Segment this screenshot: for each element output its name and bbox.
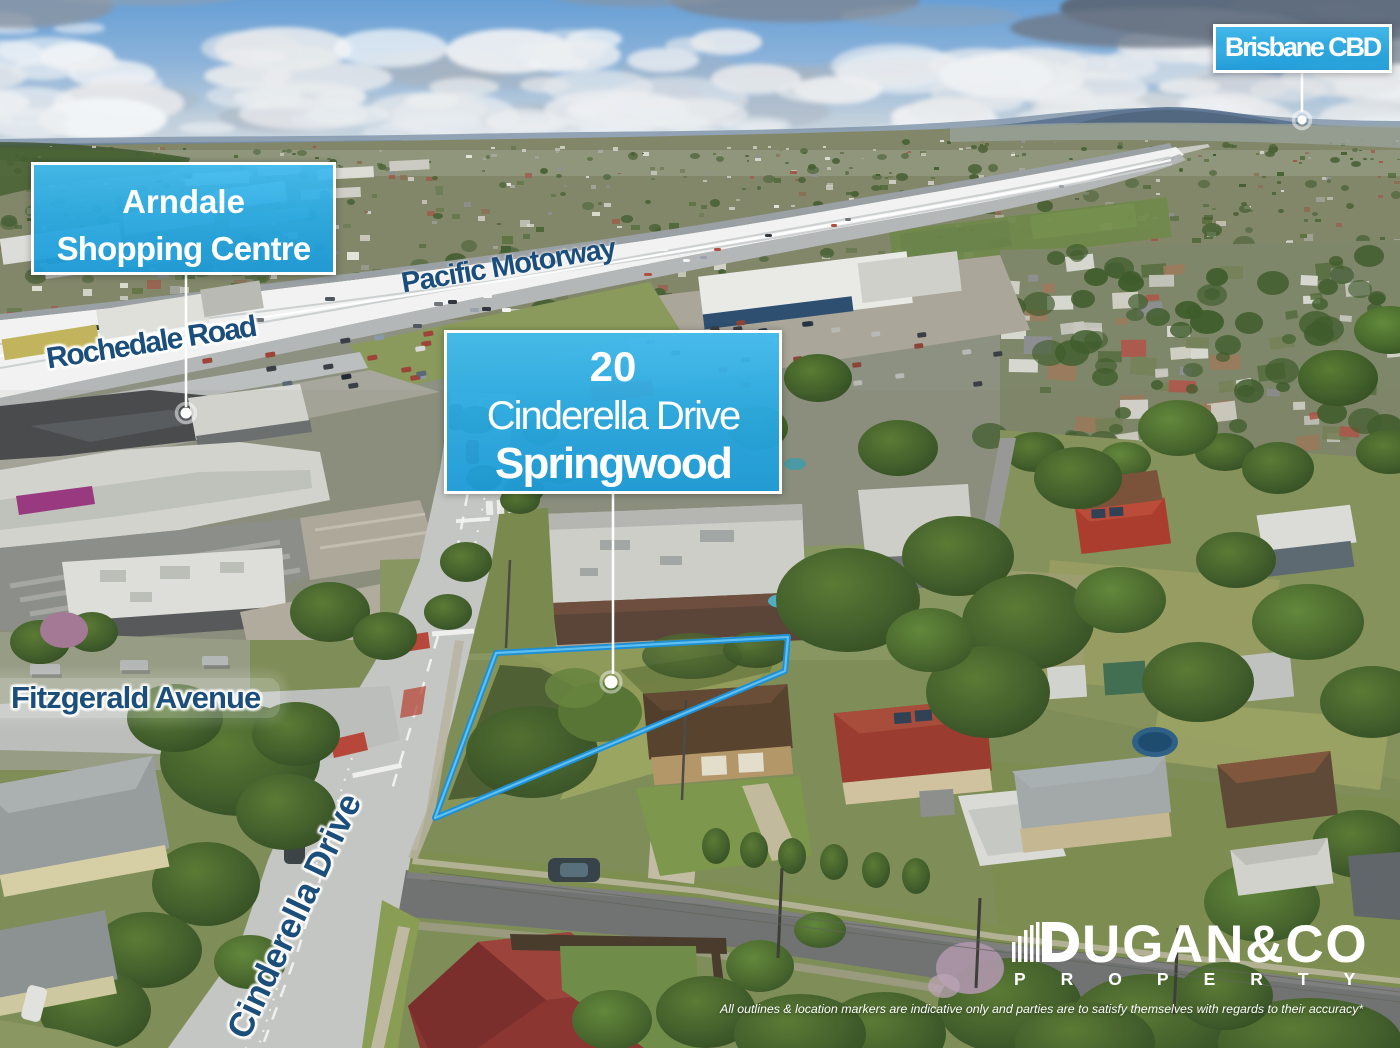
svg-text:UGAN&CO: UGAN&CO (1082, 916, 1368, 974)
svg-text:PROPERTY: PROPERTY (1014, 969, 1390, 989)
